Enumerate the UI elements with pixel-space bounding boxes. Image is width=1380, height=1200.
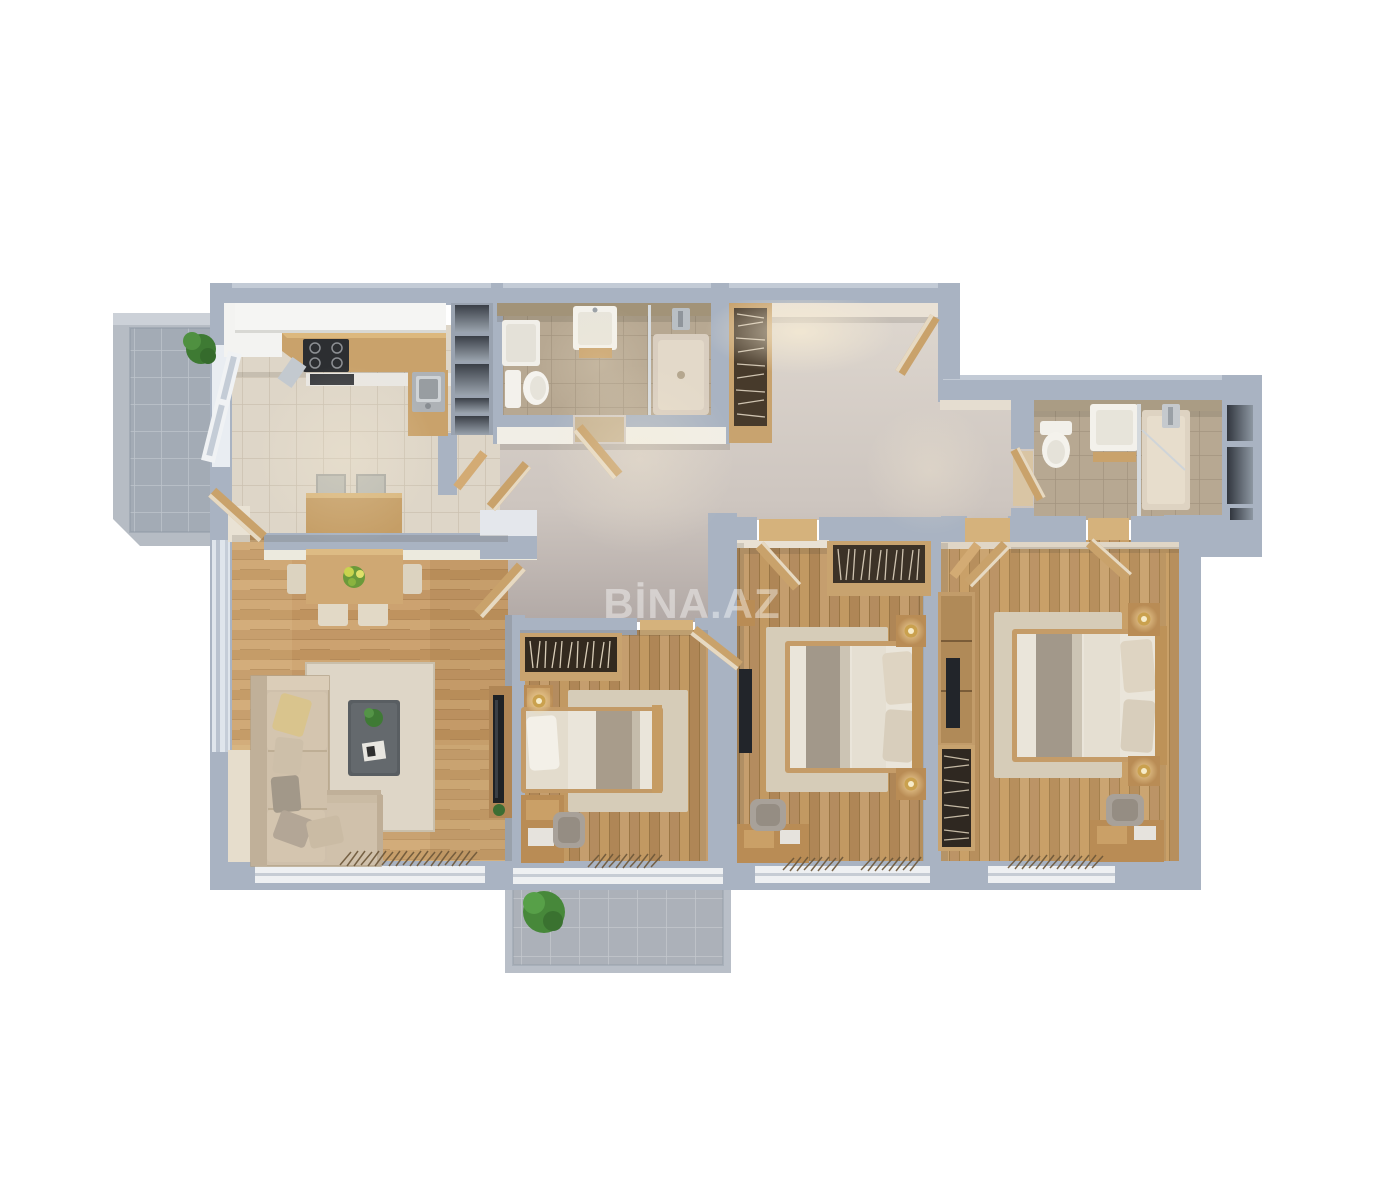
svg-text:BİNA.AZ: BİNA.AZ <box>603 580 780 627</box>
